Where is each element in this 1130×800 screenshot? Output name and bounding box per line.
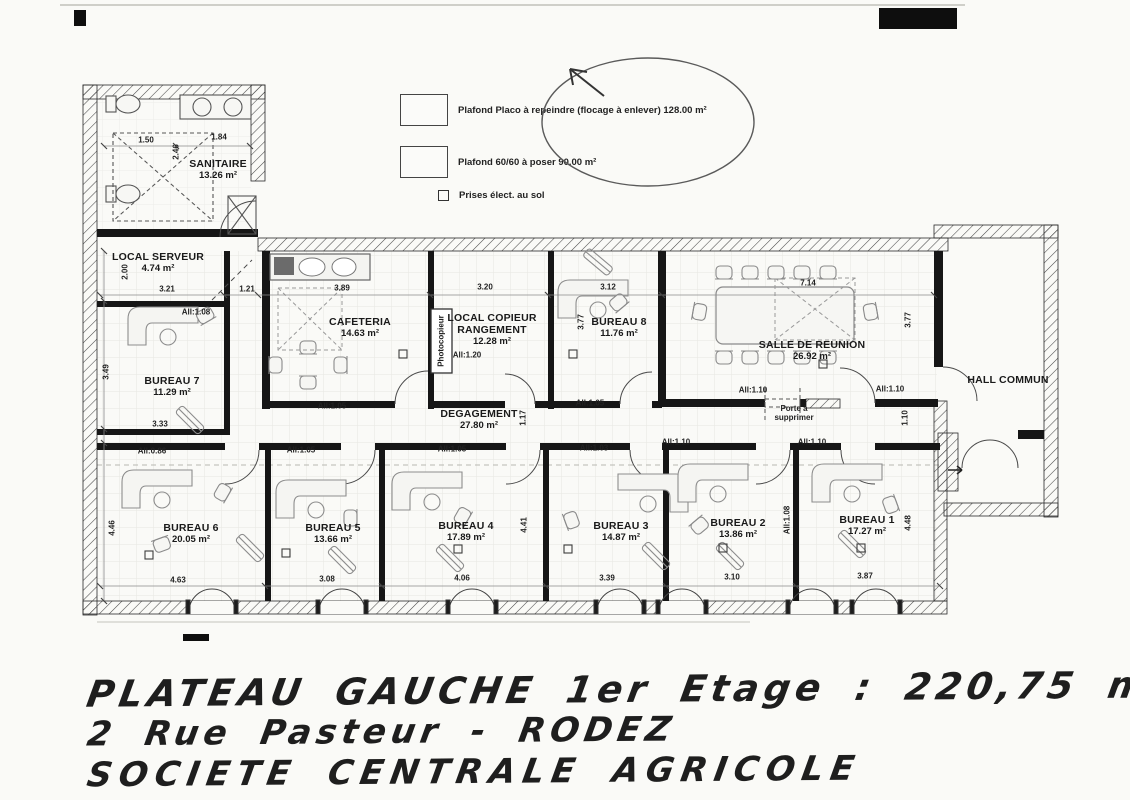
north-indicator: [542, 58, 754, 186]
title-line-3: SOCIETE CENTRALE AGRICOLE: [84, 749, 864, 796]
scanned-floorplan-sheet: Plafond Placo à repeindre (flocage à enl…: [0, 0, 1130, 800]
title-line-1: PLATEAU GAUCHE 1er Etage : 220,75 m²: [84, 663, 1130, 715]
ceiling-grid: [97, 99, 940, 622]
title-line-2: 2 Rue Pasteur - RODEZ: [84, 709, 679, 754]
photocopier: [431, 309, 452, 373]
